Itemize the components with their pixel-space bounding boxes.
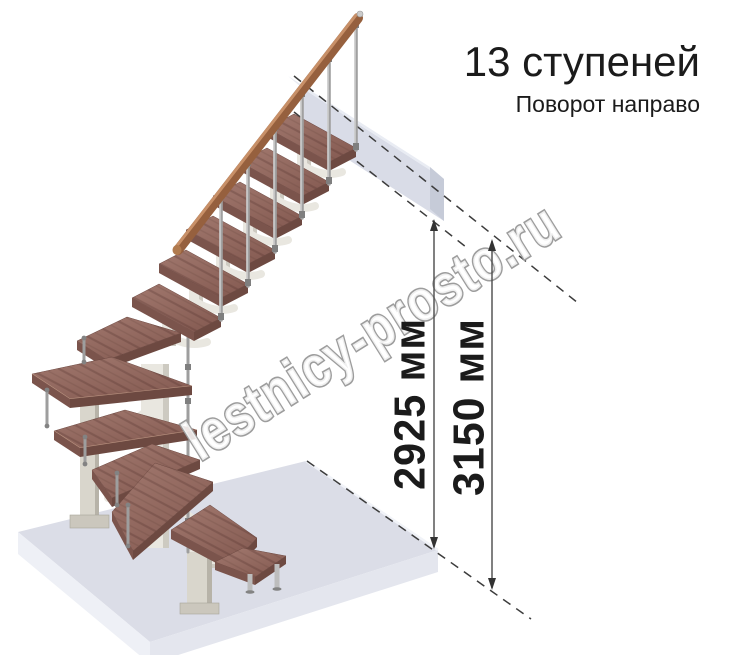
page-title: 13 ступеней <box>464 40 700 84</box>
page-subtitle: Поворот направо <box>464 93 700 116</box>
dimension-label-3150: 3150 мм <box>445 318 494 496</box>
dimension-label-2925: 2925 мм <box>386 318 435 490</box>
staircase-diagram-page: lestnicy-prosto.ru 2925 мм 3150 мм 13 ст… <box>0 0 744 655</box>
title-block: 13 ступеней Поворот направо <box>464 40 700 116</box>
